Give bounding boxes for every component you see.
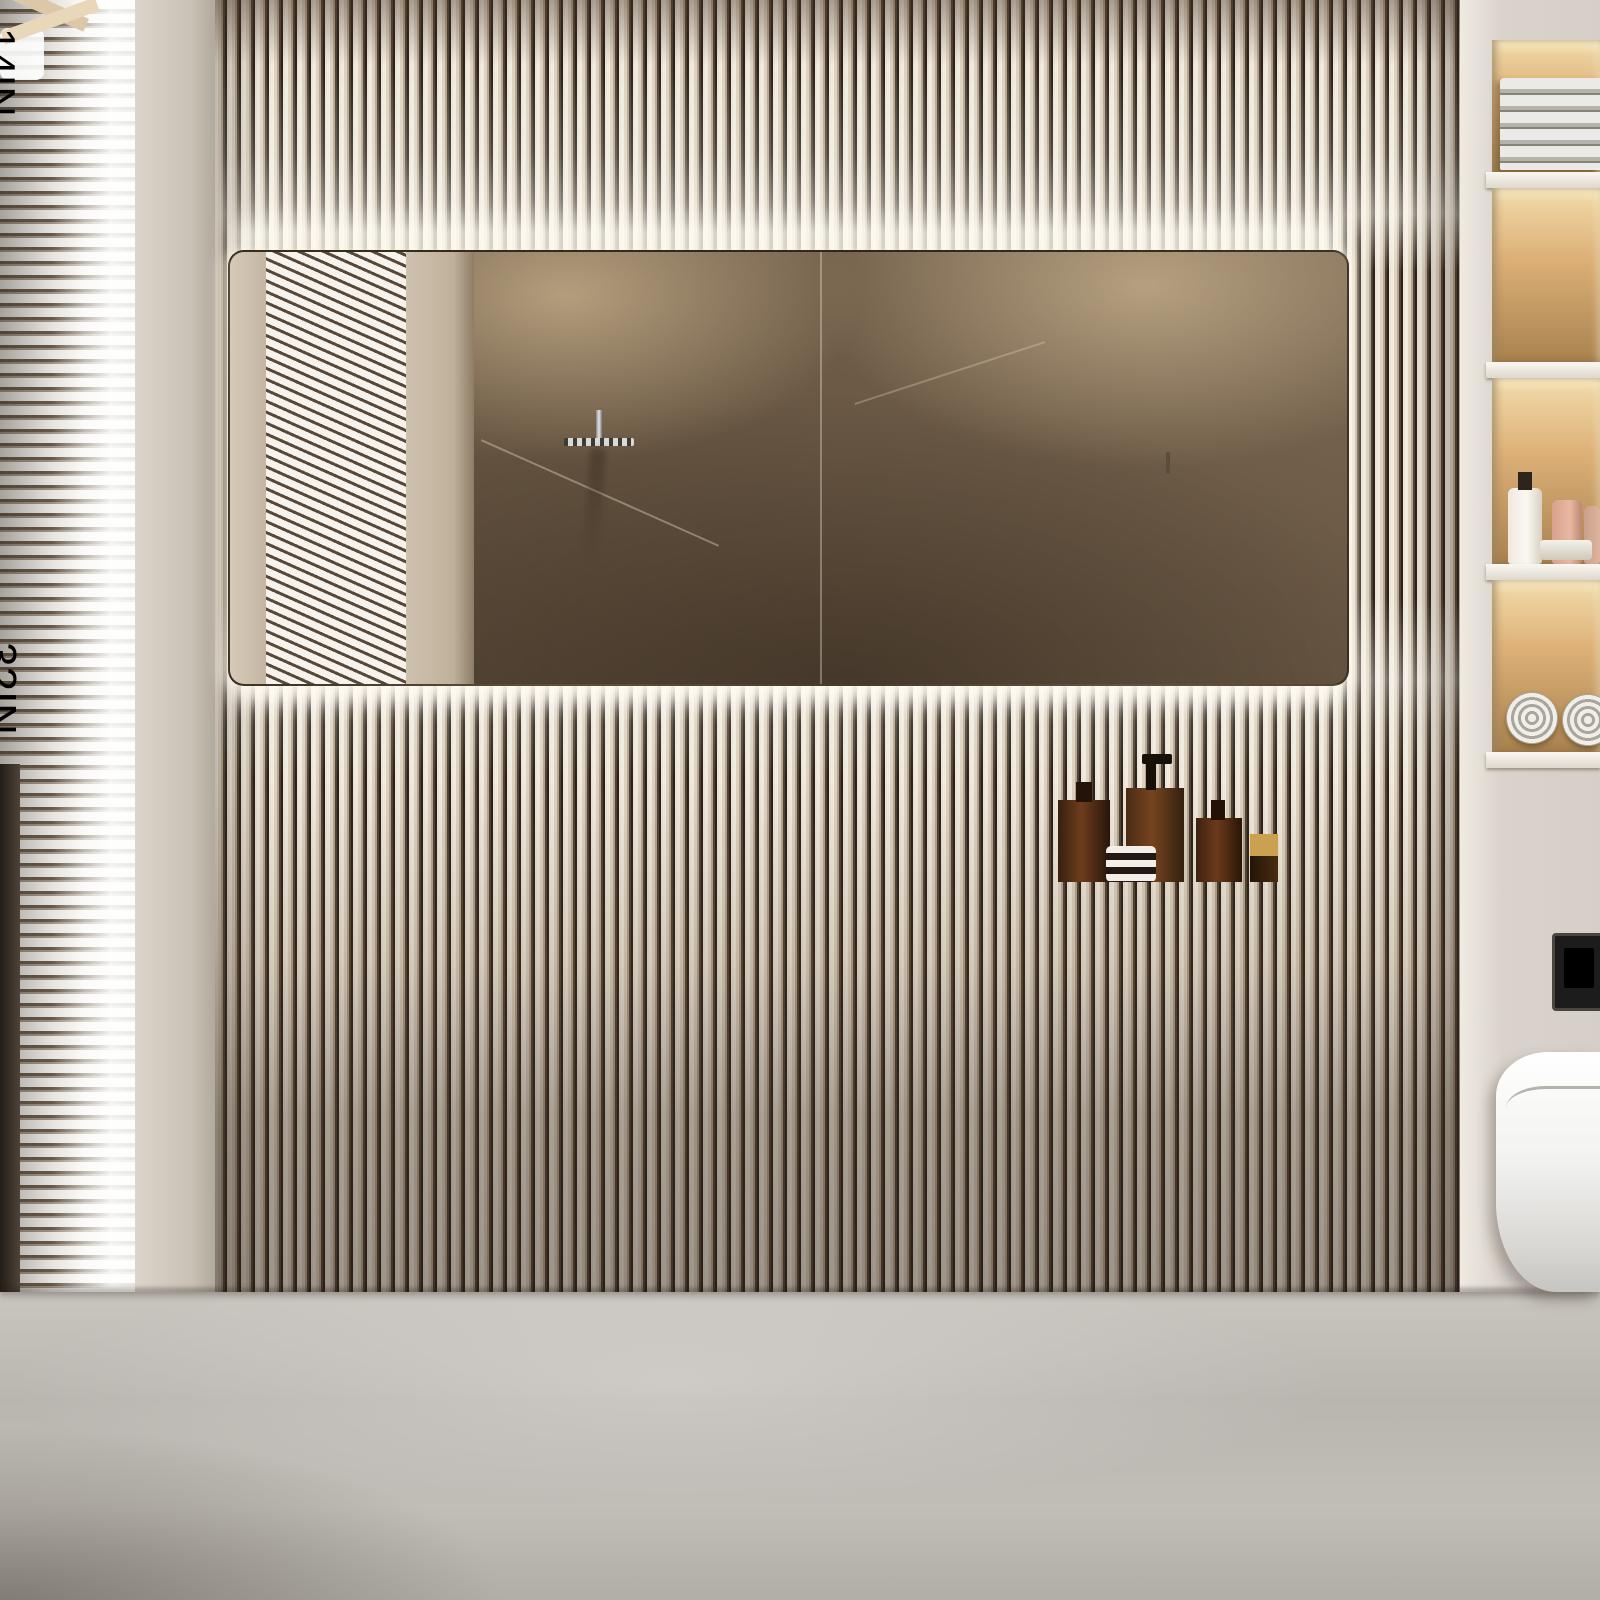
marble-vein (855, 341, 1046, 405)
niche-empty (1492, 188, 1600, 362)
marble-panel-seam (820, 252, 822, 684)
robe-hook (1166, 452, 1170, 474)
bottle-label (1126, 788, 1184, 826)
bottle-neck (1076, 782, 1092, 802)
shower-shadow (582, 448, 606, 569)
bottle-neck (1211, 800, 1225, 820)
basket-rim (1106, 1186, 1396, 1228)
bottle-label (1196, 818, 1242, 845)
lotion-pump (1518, 472, 1532, 490)
toilet-lid-seam (1506, 1086, 1600, 1115)
rolled-towel (1506, 692, 1558, 744)
flush-button[interactable] (1564, 948, 1594, 988)
bathroom-scene: 54IN 30IN 22IN 20IN 14IN 10IN 32IN 24IN … (0, 0, 1600, 1600)
soap-tray (1540, 540, 1592, 560)
pump-stem (1146, 760, 1156, 790)
shelf-lip (1486, 362, 1600, 378)
shower-head-reflection (596, 410, 602, 440)
mirror-reflection-blinds (266, 252, 406, 684)
shower-head-reflection (564, 438, 634, 446)
wicker-basket-left[interactable] (868, 1214, 1106, 1350)
striped-jar (1106, 846, 1156, 882)
shelf-lip (1486, 564, 1600, 580)
gold-label (1250, 834, 1278, 856)
pump-head (1142, 754, 1172, 764)
bottle-label (1058, 800, 1110, 831)
mirror-cove-glow-top (232, 222, 1342, 248)
amber-bottle (1196, 818, 1242, 882)
shelf-lip (1486, 172, 1600, 188)
shelf-lip (1486, 752, 1600, 768)
small-dark-bottle (1250, 834, 1278, 882)
mirror-reflection-wall (230, 252, 266, 684)
wicker-basket-right[interactable] (1112, 1216, 1390, 1354)
basket-rim (862, 1184, 1112, 1226)
dim-pedestal-height: 32IN (0, 642, 25, 1600)
lotion-bottle (1508, 488, 1542, 564)
folded-towels (1500, 78, 1600, 170)
amber-bottle (1058, 800, 1110, 882)
hanging-robe (1086, 498, 1256, 684)
